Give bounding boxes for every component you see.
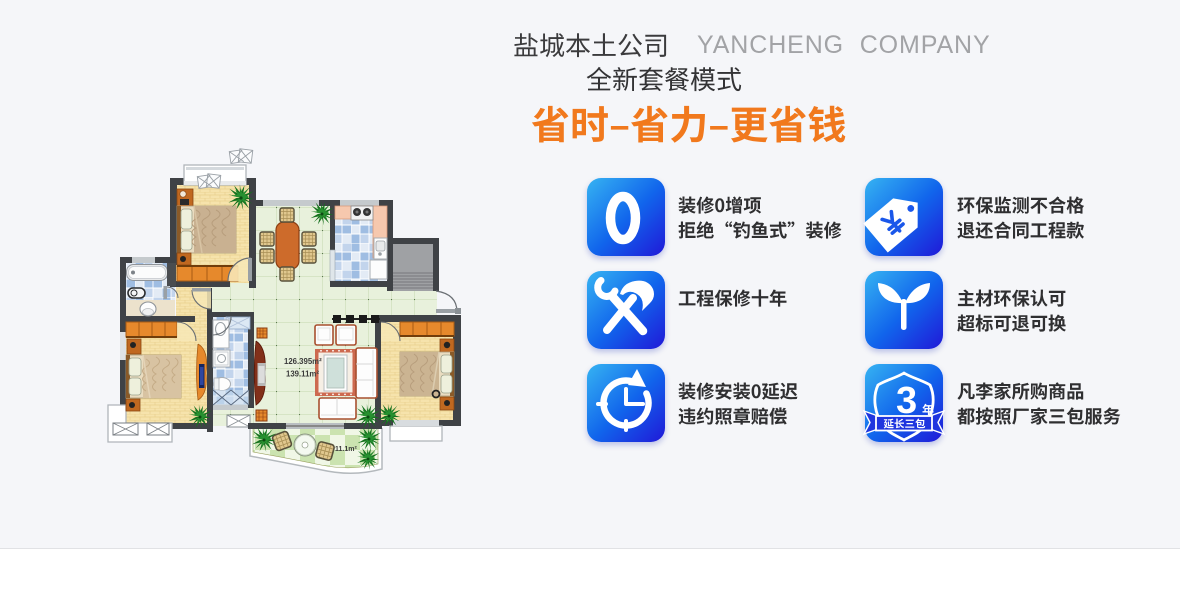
svg-text:11.1m²: 11.1m² xyxy=(335,446,357,453)
svg-text:126.395m²: 126.395m² xyxy=(284,357,322,366)
svg-text:139.11m²: 139.11m² xyxy=(286,370,319,379)
